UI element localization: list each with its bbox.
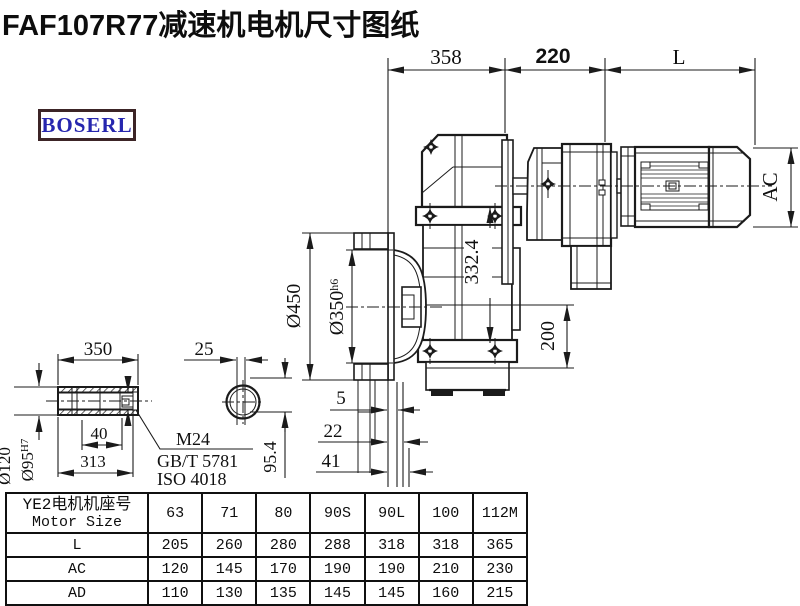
std-gbt5781-label: GB/T 5781 — [157, 451, 238, 471]
dim-L-label: L — [673, 45, 686, 69]
table-cell: 260 — [202, 533, 256, 557]
table-row-AD: AD 110 130 135 145 145 160 215 — [6, 581, 527, 605]
table-cell: 230 — [473, 557, 527, 581]
table-cell: 130 — [202, 581, 256, 605]
thread-m24-label: M24 — [176, 429, 210, 449]
dim-25-label: 25 — [195, 339, 214, 360]
row-label: L — [6, 533, 148, 557]
column-header: 112M — [473, 493, 527, 533]
dim-41-label: 41 — [322, 451, 341, 472]
dim-95h7-label: Ø95H7 — [18, 438, 37, 481]
motor-size-header-en: Motor Size — [7, 514, 147, 531]
table-cell: 145 — [365, 581, 419, 605]
table-cell: 145 — [202, 557, 256, 581]
dim-450-label: Ø450 — [283, 284, 305, 328]
table-cell: 318 — [419, 533, 473, 557]
table-cell: 190 — [365, 557, 419, 581]
dim-313-label: 313 — [80, 452, 106, 471]
table-cell: 205 — [148, 533, 202, 557]
motor — [621, 147, 750, 227]
table-cell: 215 — [473, 581, 527, 605]
dim-22-label: 22 — [324, 421, 343, 442]
motor-size-table: YE2电机机座号 Motor Size 63 71 80 90S 90L 100… — [5, 492, 528, 606]
table-cell: 135 — [256, 581, 310, 605]
table-cell: 190 — [310, 557, 364, 581]
column-header: 90S — [310, 493, 364, 533]
dim-95-4-label: 95.4 — [260, 441, 280, 473]
row-label: AD — [6, 581, 148, 605]
dim-358-label: 358 — [430, 45, 462, 69]
table-cell: 110 — [148, 581, 202, 605]
column-header: 80 — [256, 493, 310, 533]
dim-200-label: 200 — [537, 321, 559, 351]
column-header: 71 — [202, 493, 256, 533]
dim-350h6-label: Ø350h6 — [326, 279, 348, 335]
dim-220-label: 220 — [535, 45, 570, 68]
table-cell: 318 — [365, 533, 419, 557]
dim-332-label: 332.4 — [461, 240, 483, 285]
table-row-AC: AC 120 145 170 190 190 210 230 — [6, 557, 527, 581]
table-row-L: L 205 260 280 288 318 318 365 — [6, 533, 527, 557]
table-cell: 210 — [419, 557, 473, 581]
table-cell: 145 — [310, 581, 364, 605]
dim-AC-label: AC — [758, 172, 782, 201]
table-header-cell: YE2电机机座号 Motor Size — [6, 493, 148, 533]
table-cell: 120 — [148, 557, 202, 581]
table-cell: 160 — [419, 581, 473, 605]
table-header-row: YE2电机机座号 Motor Size 63 71 80 90S 90L 100… — [6, 493, 527, 533]
table-cell: 288 — [310, 533, 364, 557]
std-iso4018-label: ISO 4018 — [157, 469, 227, 489]
column-header: 100 — [419, 493, 473, 533]
table-cell: 365 — [473, 533, 527, 557]
column-header: 90L — [365, 493, 419, 533]
fan-cowl — [709, 147, 750, 227]
dim-40-label: 40 — [91, 424, 108, 443]
table-cell: 280 — [256, 533, 310, 557]
dim-5-label: 5 — [336, 388, 346, 409]
output-flange — [354, 233, 426, 473]
motor-size-header-cn: YE2电机机座号 — [7, 496, 147, 514]
dim-shaft-350-label: 350 — [84, 339, 113, 360]
row-label: AC — [6, 557, 148, 581]
column-header: 63 — [148, 493, 202, 533]
dim-120-label: Ø120 — [0, 447, 14, 485]
table-cell: 170 — [256, 557, 310, 581]
